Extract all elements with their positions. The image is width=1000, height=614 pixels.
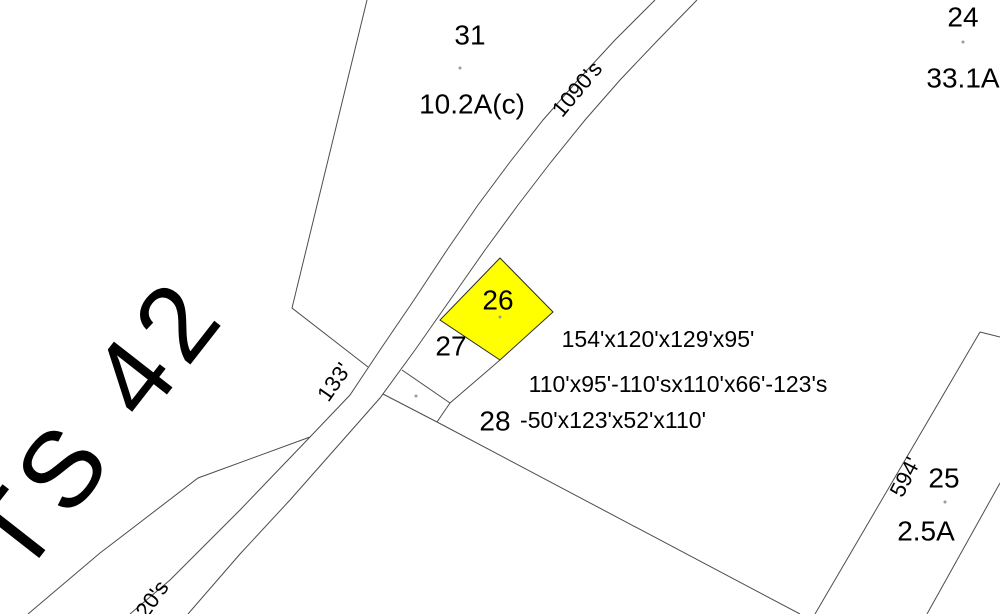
- parcel-map-canvas: TS 42 31 10.2A(c) 24 33.1A 26 27 28 25 2…: [0, 0, 1000, 614]
- parcel-25-top-boundary: [980, 332, 1000, 337]
- parcel-28-label: 28: [479, 406, 510, 437]
- parcel-28-lower-boundary: [437, 422, 800, 614]
- parcel-25-right-boundary: [927, 483, 1000, 614]
- parcel-26-centroid-dot: [499, 316, 502, 319]
- parcel-27-label: 27: [435, 331, 466, 362]
- parcel-25-area-label: 2.5A: [897, 516, 955, 547]
- parcel-25-centroid-dot: [944, 501, 947, 504]
- parcel-26-label: 26: [482, 285, 513, 316]
- road-frontage-1090-label: 1090's: [547, 56, 607, 121]
- road-frontage-133-label: 133': [312, 358, 356, 406]
- parcel-31-label: 31: [454, 20, 485, 51]
- parcel-27-lower-boundary: [402, 370, 450, 403]
- parcel-28-upper-boundary: [383, 394, 437, 422]
- parcel-25-frontage-label: 594': [885, 453, 926, 501]
- parcel-25-label: 25: [928, 463, 959, 494]
- parcel-24-centroid-dot: [962, 41, 965, 44]
- parcel-24-label: 24: [947, 2, 978, 33]
- parcel-26-dimensions: 154'x120'x129'x95': [562, 326, 755, 352]
- map-sheet-label: TS 42: [0, 253, 248, 594]
- parcel-31-boundary: [292, 0, 368, 367]
- parcel-27-dimensions: 110'x95'-110'sx110'x66'-123's: [529, 371, 828, 397]
- parcel-28-dimensions: -50'x123'x52'x110': [520, 407, 706, 433]
- road-frontage-20s-label: 20's: [130, 576, 173, 614]
- parcel-24-area-label: 33.1A: [926, 63, 999, 94]
- parcel-28-centroid-dot: [415, 395, 418, 398]
- parcel-31-area-label: 10.2A(c): [419, 89, 525, 120]
- parcel-map: TS 42 31 10.2A(c) 24 33.1A 26 27 28 25 2…: [0, 0, 1000, 614]
- parcel-31-centroid-dot: [459, 67, 462, 70]
